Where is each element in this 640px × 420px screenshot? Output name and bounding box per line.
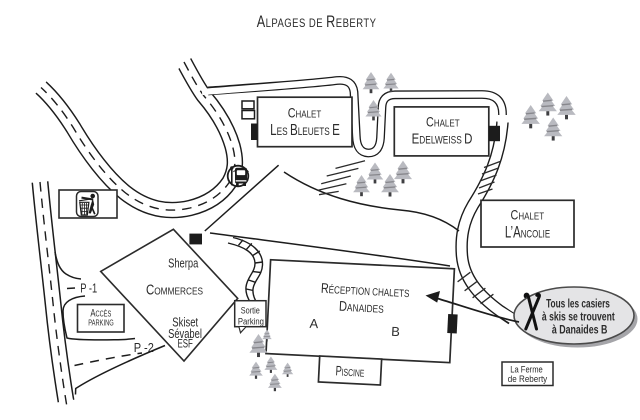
svg-text:P -1: P -1 <box>80 282 97 296</box>
svg-text:Parking: Parking <box>238 316 264 327</box>
svg-text:Tous les casiers: Tous les casiers <box>546 298 610 311</box>
svg-text:Sherpa: Sherpa <box>168 257 199 271</box>
svg-text:PARKING: PARKING <box>88 317 114 328</box>
svg-text:à skis se trouvent: à skis se trouvent <box>542 312 615 324</box>
svg-text:de Reberty: de Reberty <box>508 373 548 384</box>
svg-text:ALPAGES DE REBERTY: ALPAGES DE REBERTY <box>257 14 377 32</box>
svg-text:ESF: ESF <box>178 338 193 351</box>
svg-text:P -2: P -2 <box>134 340 154 355</box>
svg-text:à Danaides B: à Danaides B <box>552 325 608 337</box>
svg-text:Sortie: Sortie <box>241 305 260 316</box>
svg-text:A: A <box>309 316 319 331</box>
svg-text:B: B <box>391 324 400 339</box>
